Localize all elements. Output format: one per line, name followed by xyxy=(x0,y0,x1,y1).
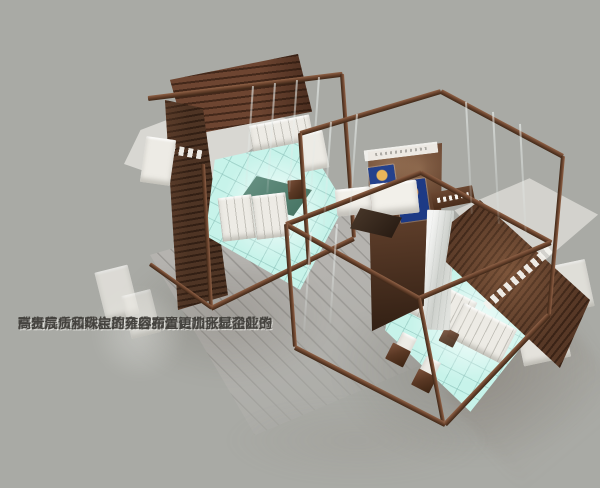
display-cabinet xyxy=(140,136,176,186)
marble-column xyxy=(423,210,454,331)
frame-beam xyxy=(440,89,564,158)
frame-beam xyxy=(299,89,441,136)
display-cabinet xyxy=(217,194,256,242)
bottom-reflection xyxy=(225,398,490,483)
booth-design-page: 展台方案构思灵感来源于高贵剔透的金 刚石次方晶体。整个展台由四个主要晶体造 型组… xyxy=(0,0,600,488)
caption-line: 高贵气质和珠宝的雍容。 xyxy=(18,316,165,333)
